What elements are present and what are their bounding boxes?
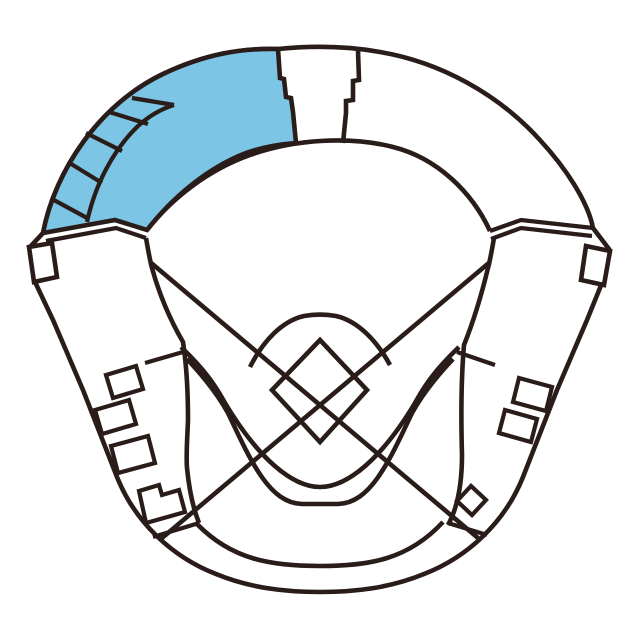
walkway-right-lower-line [491, 228, 592, 239]
left-box-1 [106, 366, 143, 398]
foul-line-diagonals [150, 262, 490, 538]
left-strip-divider [145, 352, 183, 363]
left-box-2 [95, 400, 136, 434]
left-box-3 [111, 436, 155, 473]
backstop-corridor [181, 347, 459, 504]
corridor-upper-curve [181, 347, 459, 487]
scoreboard-notch-right-steps [343, 51, 359, 143]
left-side-strip [95, 238, 199, 537]
diagonal-left [150, 262, 478, 538]
home-stand-arc [197, 522, 443, 566]
infield-diamond [272, 340, 367, 442]
right-box-2 [499, 410, 537, 442]
playing-field [250, 315, 390, 443]
right-box-1 [513, 378, 552, 411]
left-box-4-lshape [139, 485, 185, 523]
left-end-box [29, 243, 57, 282]
right-end-box [581, 246, 610, 285]
seat-map [0, 0, 640, 640]
stadium-map-svg [0, 0, 640, 640]
diagonal-right [162, 262, 490, 538]
section-left-outfield-upper[interactable] [43, 49, 296, 233]
right-strip-inner-edge [448, 238, 494, 525]
